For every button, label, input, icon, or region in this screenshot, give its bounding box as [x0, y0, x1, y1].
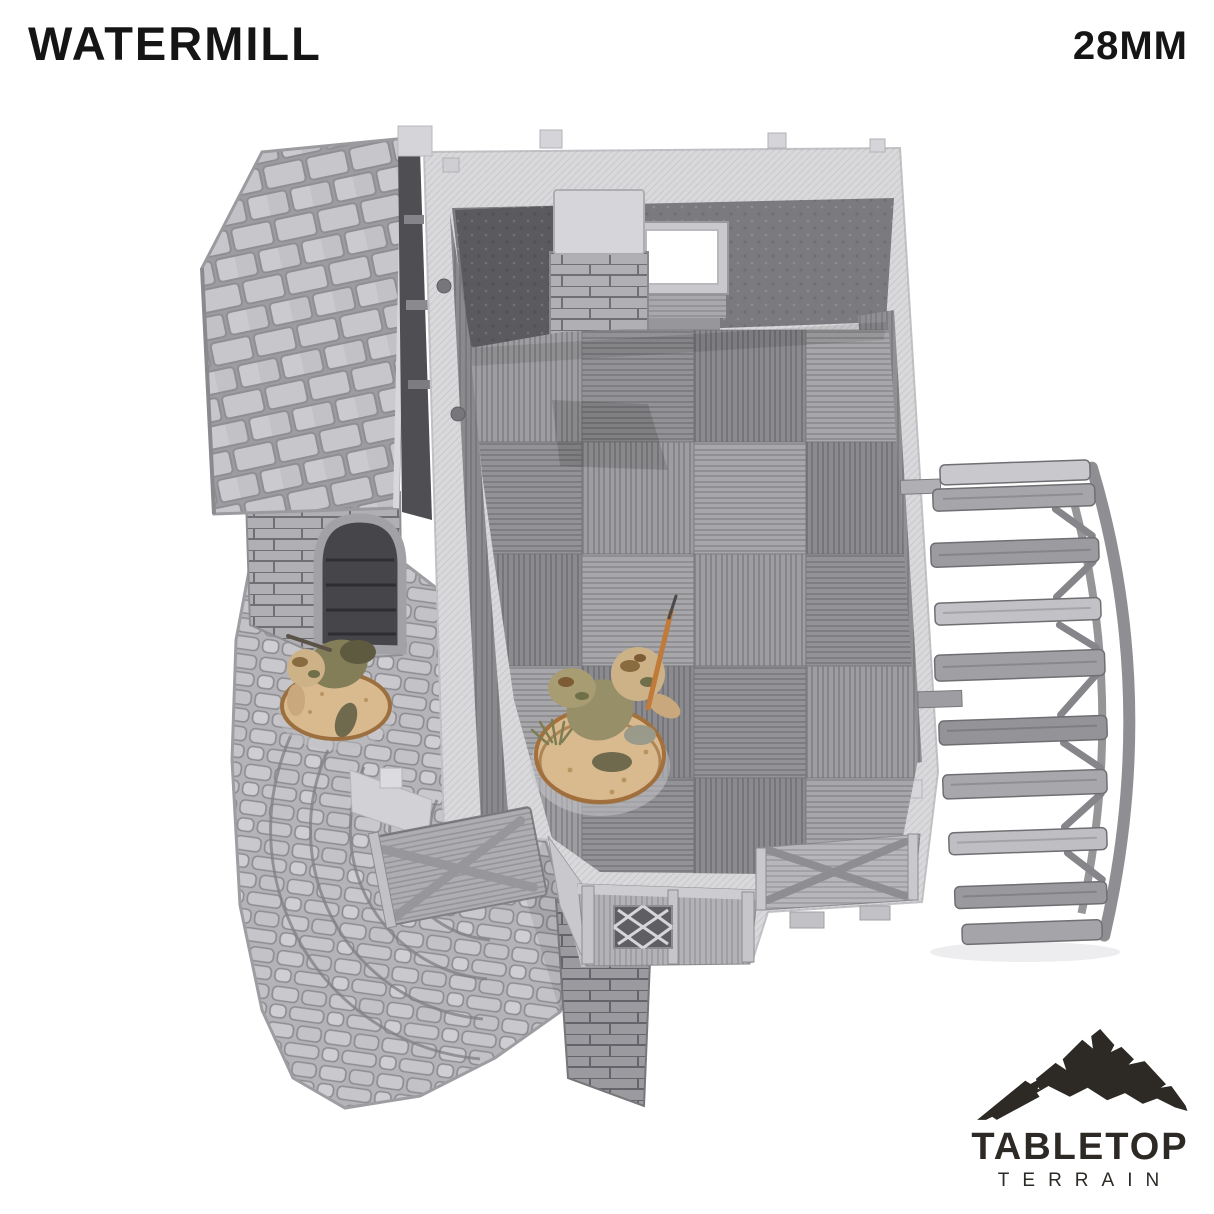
braced-wall-panel	[756, 834, 920, 928]
brand-name: TABLETOP	[962, 1128, 1198, 1166]
wall-peg	[380, 768, 402, 788]
brand-logo: TABLETOP TERRAIN	[962, 1029, 1198, 1192]
wall-peg	[443, 158, 459, 172]
wheel-shadow	[930, 942, 1120, 962]
water-wheel	[900, 459, 1138, 946]
wall-peg	[870, 139, 885, 152]
wall-peg	[540, 130, 562, 148]
corner-block	[398, 126, 432, 156]
lattice-window	[614, 906, 672, 948]
wall-hole	[451, 407, 465, 421]
brand-subtitle: TERRAIN	[972, 1170, 1198, 1192]
mountain-icon	[968, 1029, 1193, 1127]
wall-peg	[768, 133, 786, 148]
shingle-roof	[202, 138, 407, 514]
wall-hole	[437, 279, 451, 293]
window-opening	[636, 222, 728, 334]
product-image-page: WATERMILL 28MM	[0, 0, 1214, 1214]
